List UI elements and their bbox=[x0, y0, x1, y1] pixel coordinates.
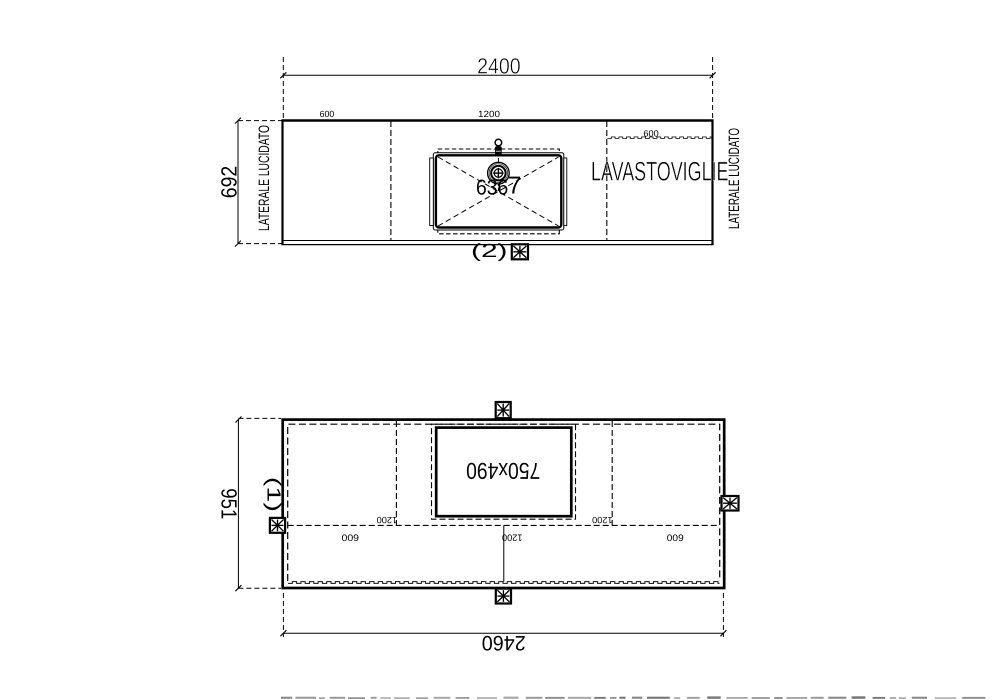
svg-text:1200: 1200 bbox=[502, 532, 523, 543]
svg-text:600: 600 bbox=[643, 128, 658, 138]
svg-text:(2): (2) bbox=[471, 241, 508, 262]
svg-text:636: 636 bbox=[476, 175, 508, 199]
svg-text:1200: 1200 bbox=[377, 515, 398, 525]
svg-text:2460: 2460 bbox=[482, 631, 526, 654]
svg-text:LATERALE LUCIDATO: LATERALE LUCIDATO bbox=[256, 125, 273, 231]
svg-text:1200: 1200 bbox=[478, 109, 500, 119]
svg-text:600: 600 bbox=[667, 532, 684, 543]
svg-text:600: 600 bbox=[320, 109, 335, 119]
svg-text:2400: 2400 bbox=[477, 53, 521, 78]
svg-text:750x490: 750x490 bbox=[466, 458, 540, 484]
svg-text:(1): (1) bbox=[263, 477, 284, 512]
svg-text:7: 7 bbox=[508, 172, 522, 199]
svg-text:692: 692 bbox=[216, 166, 241, 199]
svg-text:LAVASTOVIGLIE: LAVASTOVIGLIE bbox=[591, 157, 729, 187]
svg-text:1200: 1200 bbox=[592, 515, 613, 525]
svg-text:LATERALE LUCIDATO: LATERALE LUCIDATO bbox=[726, 128, 743, 229]
svg-text:600: 600 bbox=[342, 532, 360, 543]
svg-text:951: 951 bbox=[217, 488, 242, 519]
